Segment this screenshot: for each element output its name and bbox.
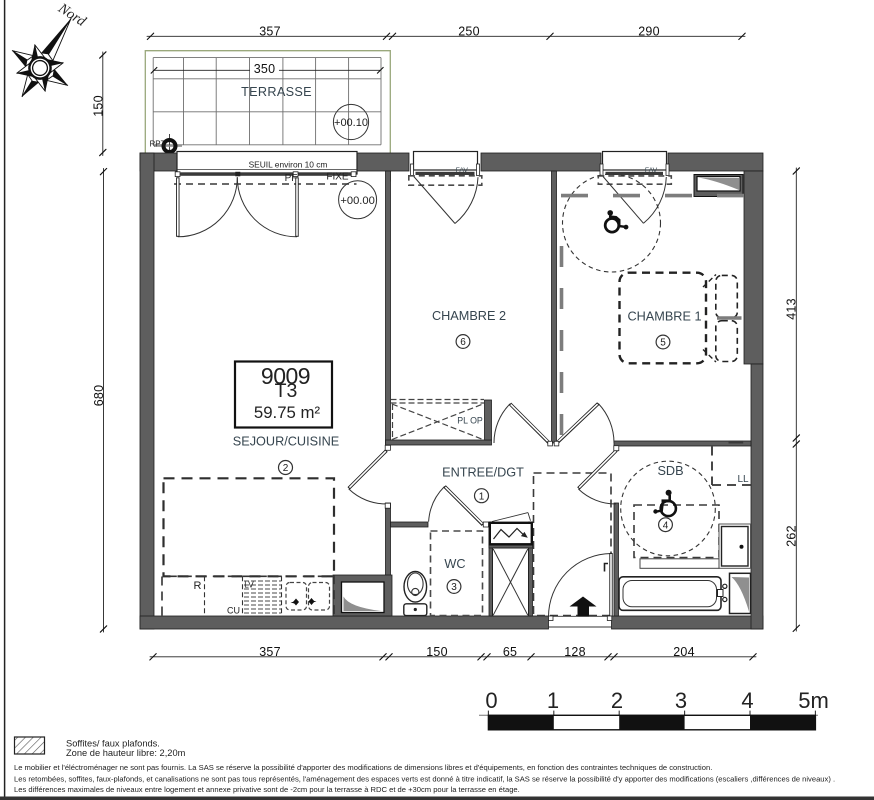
svg-text:262: 262 xyxy=(785,525,799,546)
svg-text:65: 65 xyxy=(503,645,517,659)
svg-text:59.75 m²: 59.75 m² xyxy=(254,403,321,422)
svg-text:Les différences maximales de n: Les différences maximales de niveaux ent… xyxy=(14,785,520,794)
svg-text:LV: LV xyxy=(244,581,254,590)
svg-text:TERRASSE: TERRASSE xyxy=(241,85,312,99)
svg-text:WC: WC xyxy=(444,557,465,571)
svg-text:SEUIL environ 10 cm: SEUIL environ 10 cm xyxy=(249,160,328,170)
svg-text:SEJOUR/CUISINE: SEJOUR/CUISINE xyxy=(233,435,339,449)
svg-text:290: 290 xyxy=(638,25,659,39)
svg-text:LL: LL xyxy=(737,474,749,485)
svg-text:1: 1 xyxy=(479,491,485,502)
svg-text:FAV: FAV xyxy=(645,167,658,174)
svg-text:Les retombées, soffites, faux-: Les retombées, soffites, faux-plafonds, … xyxy=(14,775,835,784)
svg-text:R: R xyxy=(194,580,202,592)
svg-text:250: 250 xyxy=(458,25,479,39)
svg-text:5: 5 xyxy=(660,338,666,349)
svg-text:Le mobilier et l'éléctroménage: Le mobilier et l'éléctroménager ne sont … xyxy=(14,763,712,772)
svg-text:4: 4 xyxy=(741,688,753,713)
svg-text:T3: T3 xyxy=(275,380,298,402)
svg-text:CHAMBRE 2: CHAMBRE 2 xyxy=(432,309,506,323)
svg-text:6: 6 xyxy=(460,337,466,348)
svg-text:2: 2 xyxy=(283,463,289,474)
svg-text:3: 3 xyxy=(675,688,687,713)
svg-text:413: 413 xyxy=(785,298,799,319)
svg-text:128: 128 xyxy=(564,645,585,659)
svg-text:CHAMBRE 1: CHAMBRE 1 xyxy=(627,310,701,324)
svg-text:FIXE: FIXE xyxy=(326,172,349,183)
svg-text:150: 150 xyxy=(426,645,447,659)
svg-text:150: 150 xyxy=(91,95,105,116)
svg-text:5m: 5m xyxy=(798,688,829,713)
svg-text:PF: PF xyxy=(285,173,298,184)
svg-text:+00.00: +00.00 xyxy=(340,195,375,207)
svg-text:Zone de hauteur libre: 2,20m: Zone de hauteur libre: 2,20m xyxy=(66,748,186,758)
svg-text:680: 680 xyxy=(92,385,106,406)
svg-text:1: 1 xyxy=(547,688,559,713)
svg-text:CU: CU xyxy=(227,606,240,616)
svg-text:SDB: SDB xyxy=(657,464,683,478)
svg-text:FAV: FAV xyxy=(456,167,469,174)
svg-text:2: 2 xyxy=(611,688,623,713)
svg-text:RPT: RPT xyxy=(150,139,166,148)
svg-text:ENTREE/DGT: ENTREE/DGT xyxy=(442,466,524,480)
svg-text:357: 357 xyxy=(259,645,280,659)
svg-text:357: 357 xyxy=(259,25,280,39)
svg-text:204: 204 xyxy=(673,645,694,659)
svg-text:+00.10: +00.10 xyxy=(334,117,368,129)
svg-text:0: 0 xyxy=(485,688,497,713)
svg-text:3: 3 xyxy=(451,582,457,593)
svg-text:350: 350 xyxy=(254,62,275,76)
svg-text:PL OP: PL OP xyxy=(457,416,483,426)
svg-text:Soffites/ faux plafonds.: Soffites/ faux plafonds. xyxy=(66,739,160,749)
svg-text:4: 4 xyxy=(663,520,669,531)
